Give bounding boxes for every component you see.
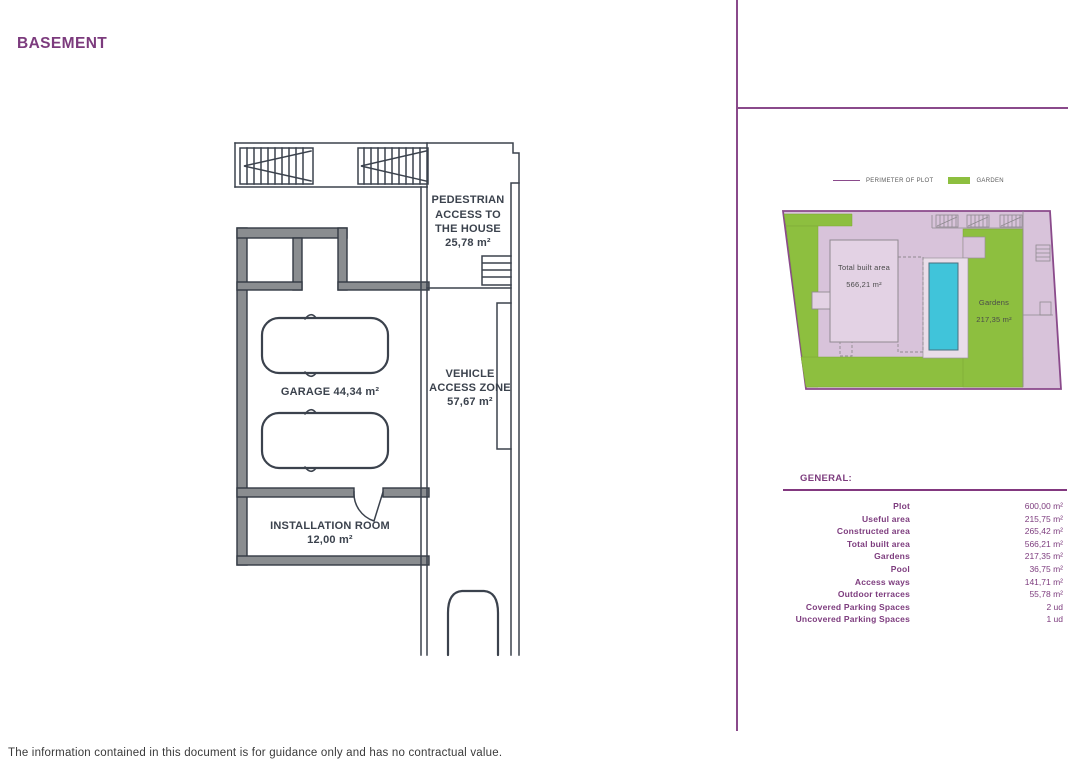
pedestrian-label: PEDESTRIAN — [432, 194, 505, 206]
general-table: Plot600,00 m² Useful area215,75 m² Const… — [783, 500, 1067, 626]
garage-label: GARAGE 44,34 m² — [281, 386, 380, 398]
row-label: Total built area — [783, 538, 910, 551]
row-label: Useful area — [783, 513, 910, 526]
row-label: Pool — [783, 563, 910, 576]
garden-notch — [963, 237, 985, 258]
pool — [929, 263, 958, 350]
row-label: Access ways — [783, 576, 910, 589]
table-row: Useful area215,75 m² — [783, 513, 1067, 526]
row-value: 265,42 m² — [910, 525, 1067, 538]
vehicle-access-label: VEHICLE — [445, 368, 494, 380]
table-row: Covered Parking Spaces2 ud — [783, 601, 1067, 614]
perimeter-legend-label: PERIMETER OF PLOT — [866, 178, 933, 184]
basement-floor-plan: PEDESTRIAN ACCESS TO THE HOUSE 25,78 m² … — [228, 136, 524, 660]
installation-door — [354, 492, 383, 521]
row-value: 36,75 m² — [910, 563, 1067, 576]
table-row: Total built area566,21 m² — [783, 538, 1067, 551]
built-area-label: Total built area — [838, 263, 891, 272]
perimeter-line-swatch — [833, 180, 860, 181]
installation-room-label: INSTALLATION ROOM — [270, 520, 390, 532]
horizontal-divider — [737, 107, 1068, 109]
svg-text:ACCESS ZONE: ACCESS ZONE — [429, 382, 511, 394]
row-value: 217,35 m² — [910, 550, 1067, 563]
car-outlines — [262, 315, 498, 655]
disclaimer-text: The information contained in this docume… — [8, 747, 502, 759]
table-row: Pool36,75 m² — [783, 563, 1067, 576]
svg-text:12,00 m²: 12,00 m² — [307, 534, 353, 546]
vertical-divider — [736, 0, 738, 731]
table-row: Gardens217,35 m² — [783, 550, 1067, 563]
side-terrace — [812, 292, 830, 309]
row-label: Uncovered Parking Spaces — [783, 613, 910, 626]
row-label: Plot — [783, 500, 910, 513]
table-row: Outdoor terraces55,78 m² — [783, 588, 1067, 601]
row-value: 566,21 m² — [910, 538, 1067, 551]
stairs-hatch — [240, 148, 428, 184]
svg-text:25,78 m²: 25,78 m² — [445, 237, 491, 249]
general-rule — [783, 489, 1067, 491]
building-footprint — [830, 240, 898, 342]
svg-text:ACCESS TO: ACCESS TO — [435, 209, 501, 221]
table-row: Uncovered Parking Spaces1 ud — [783, 613, 1067, 626]
row-value: 1 ud — [910, 613, 1067, 626]
row-value: 55,78 m² — [910, 588, 1067, 601]
site-plan: Total built area 566,21 m² Gardens 217,3… — [775, 205, 1070, 395]
garden-swatch — [948, 177, 970, 184]
general-heading: GENERAL: — [783, 473, 1067, 484]
svg-text:566,21 m²: 566,21 m² — [846, 280, 882, 289]
table-row: Access ways141,71 m² — [783, 576, 1067, 589]
garden-legend-label: GARDEN — [976, 178, 1003, 184]
row-label: Outdoor terraces — [783, 588, 910, 601]
table-row: Constructed area265,42 m² — [783, 525, 1067, 538]
row-value: 2 ud — [910, 601, 1067, 614]
general-summary: GENERAL: Plot600,00 m² Useful area215,75… — [783, 473, 1067, 626]
row-label: Constructed area — [783, 525, 910, 538]
svg-text:57,67 m²: 57,67 m² — [447, 396, 493, 408]
row-value: 215,75 m² — [910, 513, 1067, 526]
row-label: Gardens — [783, 550, 910, 563]
site-plan-legend: PERIMETER OF PLOT GARDEN — [833, 177, 1004, 184]
row-value: 600,00 m² — [910, 500, 1067, 513]
row-label: Covered Parking Spaces — [783, 601, 910, 614]
pedestrian-stairs — [482, 256, 511, 285]
svg-text:THE HOUSE: THE HOUSE — [435, 223, 501, 235]
table-row: Plot600,00 m² — [783, 500, 1067, 513]
svg-text:217,35 m²: 217,35 m² — [976, 315, 1012, 324]
document-page: BASEMENT — [0, 0, 1080, 768]
gardens-label: Gardens — [979, 298, 1009, 307]
row-value: 141,71 m² — [910, 576, 1067, 589]
page-title: BASEMENT — [17, 35, 107, 53]
